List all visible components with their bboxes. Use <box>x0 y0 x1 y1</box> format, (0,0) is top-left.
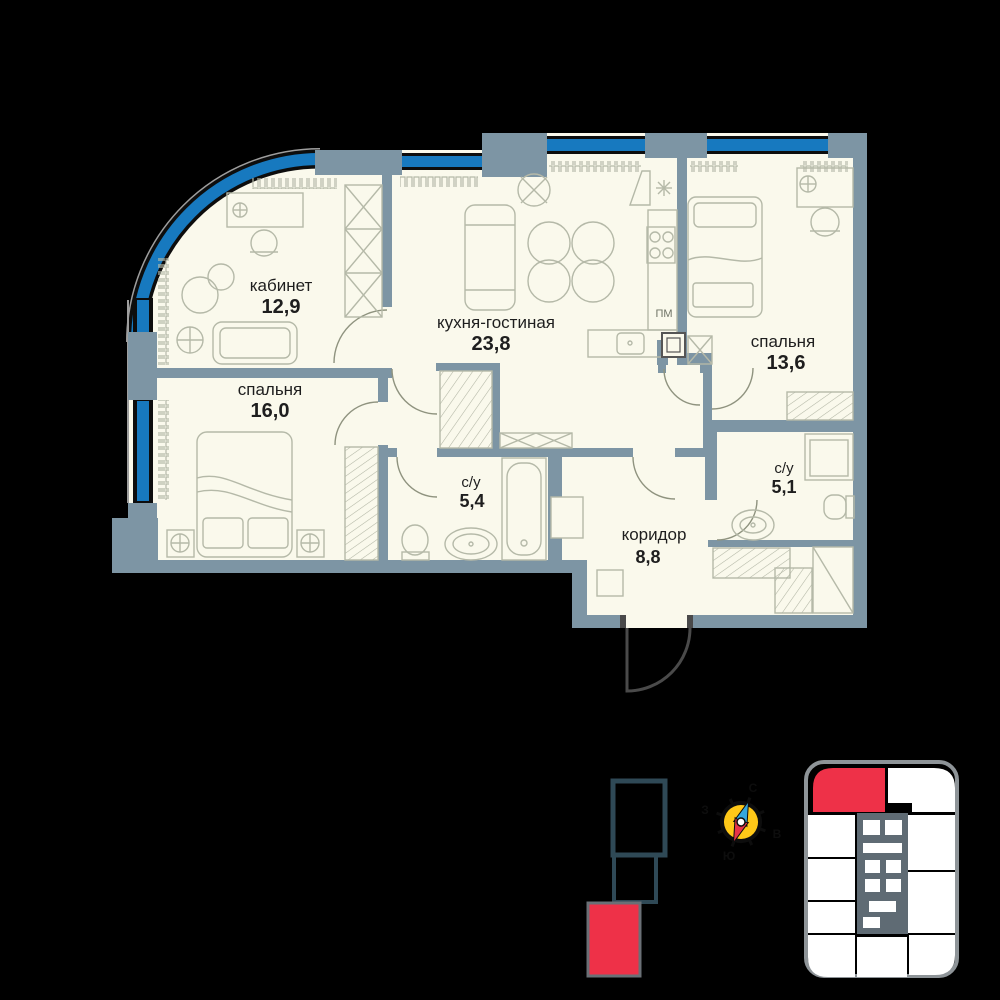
label-kitchen-name: кухня-гостиная <box>437 313 555 332</box>
label-kabinet-name: кабинет <box>250 276 313 295</box>
label-bath-right-area: 5,1 <box>771 477 796 497</box>
label-kabinet-area: 12,9 <box>262 296 301 318</box>
compass-icon: С В Ю З <box>701 781 781 863</box>
compass-east: В <box>773 827 782 841</box>
compass-west: З <box>701 803 709 817</box>
light-symbol <box>656 180 672 196</box>
label-dishwasher: ПМ <box>655 308 672 320</box>
building-section-icon <box>588 781 665 976</box>
label-corridor-area: 8,8 <box>635 547 660 567</box>
label-kitchen-area: 23,8 <box>472 333 511 355</box>
section-highlight <box>588 903 640 976</box>
label-corridor-name: коридор <box>622 525 687 544</box>
keyplan <box>806 762 957 977</box>
floorplan-image: кабинет 12,9 кухня-гостиная 23,8 спальня… <box>0 0 1000 1000</box>
label-bath-right-name: с/у <box>774 460 794 477</box>
keyplan-core <box>857 813 908 934</box>
label-bedroom-right-area: 13,6 <box>767 352 806 374</box>
compass-south: Ю <box>723 849 735 863</box>
label-bedroom-right-name: спальня <box>751 332 816 351</box>
label-bath-small-area: 5,4 <box>459 491 484 511</box>
keyplan-unit-highlight <box>813 768 885 812</box>
compass-north: С <box>749 781 758 795</box>
label-bedroom-left-area: 16,0 <box>251 400 290 422</box>
label-bedroom-left-name: спальня <box>238 380 303 399</box>
label-bath-small-name: с/у <box>461 474 481 491</box>
apartment-plan: кабинет 12,9 кухня-гостиная 23,8 спальня… <box>112 133 867 691</box>
